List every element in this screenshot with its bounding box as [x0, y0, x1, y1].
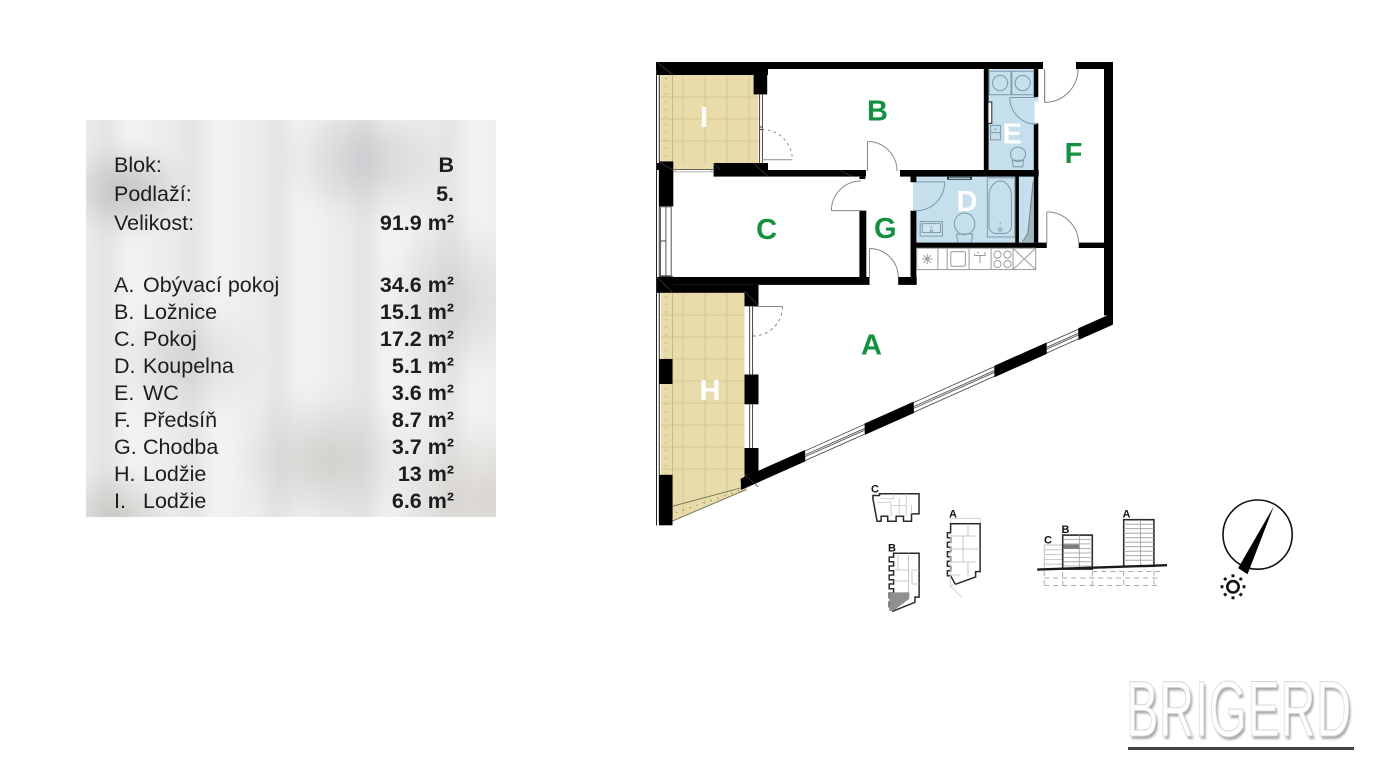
svg-text:E: E — [1003, 119, 1022, 151]
svg-text:H: H — [700, 375, 721, 407]
svg-text:I: I — [700, 102, 708, 134]
svg-text:B: B — [1062, 524, 1070, 536]
svg-text:A: A — [1123, 509, 1131, 521]
svg-text:G: G — [874, 213, 897, 245]
svg-text:C: C — [871, 484, 879, 496]
svg-text:F: F — [1065, 138, 1083, 170]
svg-text:B: B — [867, 96, 888, 128]
svg-text:D: D — [957, 186, 978, 218]
svg-text:C: C — [756, 214, 777, 246]
svg-text:A: A — [861, 330, 882, 362]
